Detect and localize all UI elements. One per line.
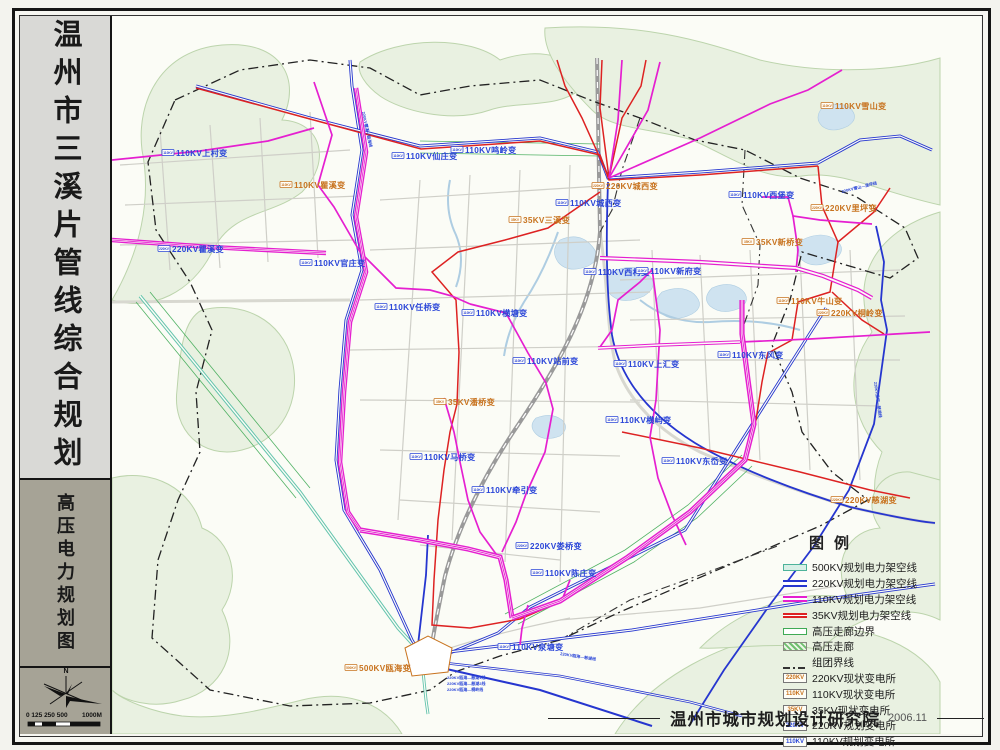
legend-label: 110KV规划电力架空线: [812, 592, 916, 607]
substation: 220KV220KV城西变: [592, 181, 659, 191]
substation-icon-voltage: 110KV: [822, 104, 832, 108]
substation-icon-voltage: 110KV: [411, 455, 421, 459]
substation-icon-voltage: 110KV: [301, 261, 311, 265]
compass-rose-icon: [20, 674, 110, 716]
substation-icon-voltage: 110KV: [637, 269, 647, 273]
substation: 110KV110KV泉塘变: [498, 642, 564, 652]
legend-label: 高压走廊: [812, 639, 854, 654]
substation: 35KV35KV潘桥变: [434, 397, 496, 407]
powerline-name-label: 220KV瓯海—慈湖2线: [447, 680, 485, 686]
substation-label: 110KV陈庄变: [545, 568, 597, 578]
legend-item: 高压走廊边界: [783, 623, 943, 639]
substation-label: 110KV横屿变: [620, 415, 672, 425]
title-sidebar: 温州市三溪片管线综合规划 高压电力规划图 N 0 125 250 500 100…: [20, 16, 112, 734]
substation-icon-voltage: 110KV: [463, 311, 473, 315]
powerline-name-label: 220KV瓯海—慈湖1线: [447, 674, 485, 680]
sheet-subtitle-block: 高压电力规划图: [20, 480, 110, 668]
substation: 110KV110KV横塘变: [462, 308, 528, 318]
substation: 35KV35KV新桥变: [742, 237, 804, 247]
substation: 110KV110KV城西变: [556, 198, 622, 208]
substation-icon-voltage: 110KV: [499, 645, 509, 649]
credit-institute: 温州市城市规划设计研究院: [670, 706, 880, 730]
substation-icon-voltage: 110KV: [163, 151, 173, 155]
powerline-name-label: 220KV瓯海—慈湖线: [560, 650, 597, 662]
substation: 220KV220KV桐岭变: [817, 308, 884, 318]
substation-icon-voltage: 110KV: [281, 183, 291, 187]
legend-item: 110KV110KV规划变电所: [783, 734, 943, 750]
sheet-title-block: 温州市三溪片管线综合规划: [20, 16, 110, 480]
legend-label: 高压走廊边界: [812, 624, 875, 639]
substation-label: 110KV瞿溪变: [294, 180, 346, 190]
legend-label: 35KV规划电力架空线: [812, 608, 911, 623]
substation: 110KV110KV牵引变: [472, 485, 538, 495]
substation-icon-voltage: 220KV: [159, 247, 170, 251]
substation-label: 110KV牵引变: [486, 485, 538, 495]
substation-icon-voltage: 110KV: [663, 459, 673, 463]
substation-label: 220KV城西变: [606, 181, 659, 191]
scale-bar-ticks: 0 125 250 500: [26, 712, 68, 719]
substation-label: 110KV东风变: [732, 350, 784, 360]
scale-bar: [20, 720, 110, 730]
credit-date: 2006.11: [888, 712, 927, 724]
substation-icon-voltage: 35KV: [436, 400, 445, 404]
substation-label: 110KV上汇变: [628, 359, 680, 369]
scale-bar-end-label: 1000M: [82, 712, 102, 719]
substation-label: 110KV官庄变: [314, 258, 366, 268]
substation-label: 110KV上村变: [176, 148, 228, 158]
sheet-subtitle: 高压电力规划图: [52, 493, 78, 654]
substation-label: 110KV任桥变: [389, 302, 441, 312]
substation-icon-voltage: 220KV: [832, 498, 843, 502]
substation-label: 220KV里坪变: [825, 203, 878, 213]
substation-icon-voltage: 220KV: [517, 544, 528, 548]
substation-icon-voltage: 220KV: [593, 184, 604, 188]
substation: 110KV110KV陈庄变: [531, 568, 597, 578]
legend-item: 110KV规划电力架空线: [783, 592, 943, 608]
substation-icon-voltage: 35KV: [744, 240, 753, 244]
powerline-name-label: 220KV瓯海—桐岭线: [447, 686, 483, 692]
credit-rule-right: [937, 718, 984, 719]
substation-label: 110KV站前变: [527, 356, 579, 366]
substation-icon-voltage: 110KV: [607, 418, 617, 422]
legend-label: 110KV规划变电所: [812, 734, 895, 749]
legend-swatch-line-110-icon: [783, 596, 807, 602]
legend-label: 110KV现状变电所: [812, 687, 895, 702]
substation-label: 110KV雪山变: [835, 101, 887, 111]
substation-label: 500KV瓯海变: [359, 663, 412, 673]
substation-label: 35KV三溪变: [523, 215, 571, 225]
substation: 220KV220KV娄桥变: [516, 541, 583, 551]
substation-icon-voltage: 110KV: [393, 154, 403, 158]
legend-item: 220KV220KV现状变电所: [783, 671, 943, 687]
legend-item: 组团界线: [783, 655, 943, 671]
map-canvas: 110KV110KV上村变220KV220KV瞿溪变110KV110KV官庄变1…: [112, 16, 981, 734]
legend-swatch-corridor-icon: [783, 642, 807, 651]
substation-icon-voltage: 110KV: [376, 305, 386, 309]
planning-map-sheet: { "sidebar": { "title": "温州市三溪片管线综合规划", …: [0, 0, 1000, 750]
substation: 110KV110KV横屿变: [606, 415, 672, 425]
sheet-title: 温州市三溪片管线综合规划: [44, 19, 86, 475]
legend-swatch-line-220-icon: [783, 580, 807, 587]
legend-label: 220KV现状变电所: [812, 671, 896, 686]
substation-icon-voltage: 110KV: [719, 353, 729, 357]
substation-icon-voltage: 110KV: [730, 193, 740, 197]
title-bar: 温州市城市规划设计研究院 2006.11: [548, 706, 984, 730]
legend-item: 500KV规划电力架空线: [783, 560, 943, 576]
legend-swatch-line-500-icon: [783, 564, 807, 571]
substation: 110KV110KV上汇变: [614, 359, 680, 369]
substation-label: 35KV潘桥变: [448, 397, 496, 407]
substation-icon-voltage: 110KV: [514, 359, 524, 363]
substation-icon-voltage: 220KV: [812, 206, 823, 210]
substation-label: 110KV马桥变: [424, 452, 476, 462]
substation: 110KV110KV西堡变: [729, 190, 795, 200]
legend-label: 组团界线: [812, 655, 854, 670]
substation-label: 220KV慈湖变: [845, 495, 898, 505]
substation-icon-voltage: 220KV: [818, 311, 829, 315]
substation-label: 110KV仙庄变: [406, 151, 458, 161]
legend-swatch-box-icon: 110KV: [783, 737, 807, 747]
substation: 110KV110KV仙庄变: [392, 151, 458, 161]
substation-label: 110KV西堡变: [743, 190, 795, 200]
substation: 110KV110KV马桥变: [410, 452, 476, 462]
substation-icon-voltage: 110KV: [615, 362, 625, 366]
substation: 110KV110KV东风变: [718, 350, 784, 360]
substation-label: 110KV泉塘变: [512, 642, 564, 652]
substation-label: 110KV新府变: [650, 266, 702, 276]
substation: 110KV110KV牛山变: [777, 296, 843, 306]
legend-label: 220KV规划电力架空线: [812, 576, 917, 591]
legend-swatch-cluster-boundary-icon: [783, 662, 807, 664]
substation-label: 110KV城西变: [570, 198, 622, 208]
legend-item: 35KV规划电力架空线: [783, 607, 943, 623]
substation-label: 220KV瞿溪变: [172, 244, 225, 254]
legend-swatch-corridor-edge-icon: [783, 628, 807, 635]
substation-label: 35KV新桥变: [756, 237, 804, 247]
substation: 110KV110KV官庄变: [300, 258, 366, 268]
substation-icon-voltage: 35KV: [511, 218, 520, 222]
substation: 500KV500KV瓯海变: [345, 663, 412, 673]
substation-icon-voltage: 110KV: [778, 299, 788, 303]
legend-item: 220KV规划电力架空线: [783, 576, 943, 592]
legend-swatch-line-35-icon: [783, 613, 807, 618]
substation-icon-voltage: 110KV: [532, 571, 542, 575]
substation-icon-voltage: 110KV: [473, 488, 483, 492]
legend-item: 高压走廊: [783, 639, 943, 655]
substation: 110KV110KV站前变: [513, 356, 579, 366]
legend-swatch-box-icon: 220KV: [783, 673, 807, 683]
legend-swatch-box-icon: 110KV: [783, 689, 807, 699]
substation-label: 220KV桐岭变: [831, 308, 884, 318]
substation: 220KV220KV里坪变: [811, 203, 878, 213]
substation-icon-voltage: 110KV: [585, 270, 595, 274]
substation-label: 220KV娄桥变: [530, 541, 583, 551]
compass-scale-block: N 0 125 250 500 1000M: [20, 668, 110, 734]
substation: 110KV110KV任桥变: [375, 302, 441, 312]
legend-item: 110KV110KV现状变电所: [783, 686, 943, 702]
credit-rule-left: [548, 718, 660, 719]
substation: 110KV110KV东岙变: [662, 456, 728, 466]
substation-icon-voltage: 500KV: [346, 666, 357, 670]
substation-label: 110KV横塘变: [476, 308, 528, 318]
substation-label: 110KV鸣岭变: [465, 145, 517, 155]
substation-label: 110KV东岙变: [676, 456, 728, 466]
legend-label: 500KV规划电力架空线: [812, 560, 917, 575]
substation-label: 110KV牛山变: [791, 296, 843, 306]
legend-title: 图例: [809, 532, 943, 553]
substation-icon-voltage: 110KV: [557, 201, 567, 205]
substation-icon-voltage: 110KV: [452, 148, 462, 152]
